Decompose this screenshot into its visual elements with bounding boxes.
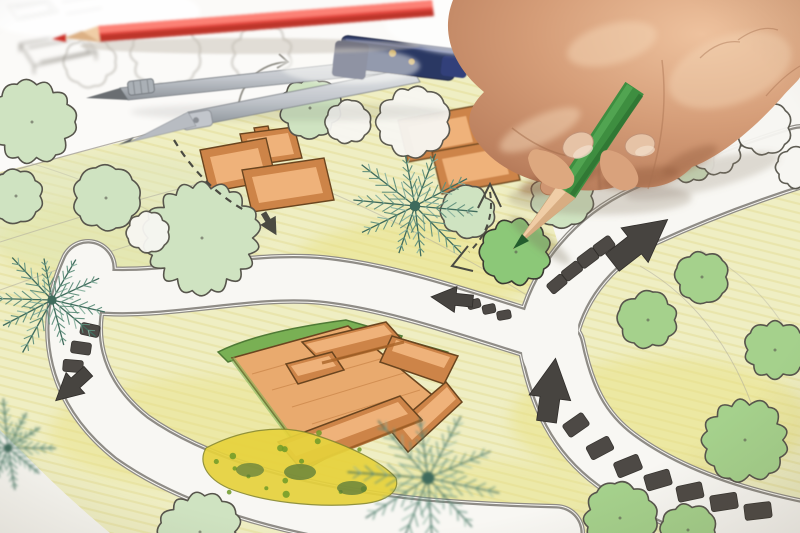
vignette	[0, 0, 800, 533]
photo-landscape-plan	[0, 0, 800, 533]
photo-canvas	[0, 0, 800, 533]
